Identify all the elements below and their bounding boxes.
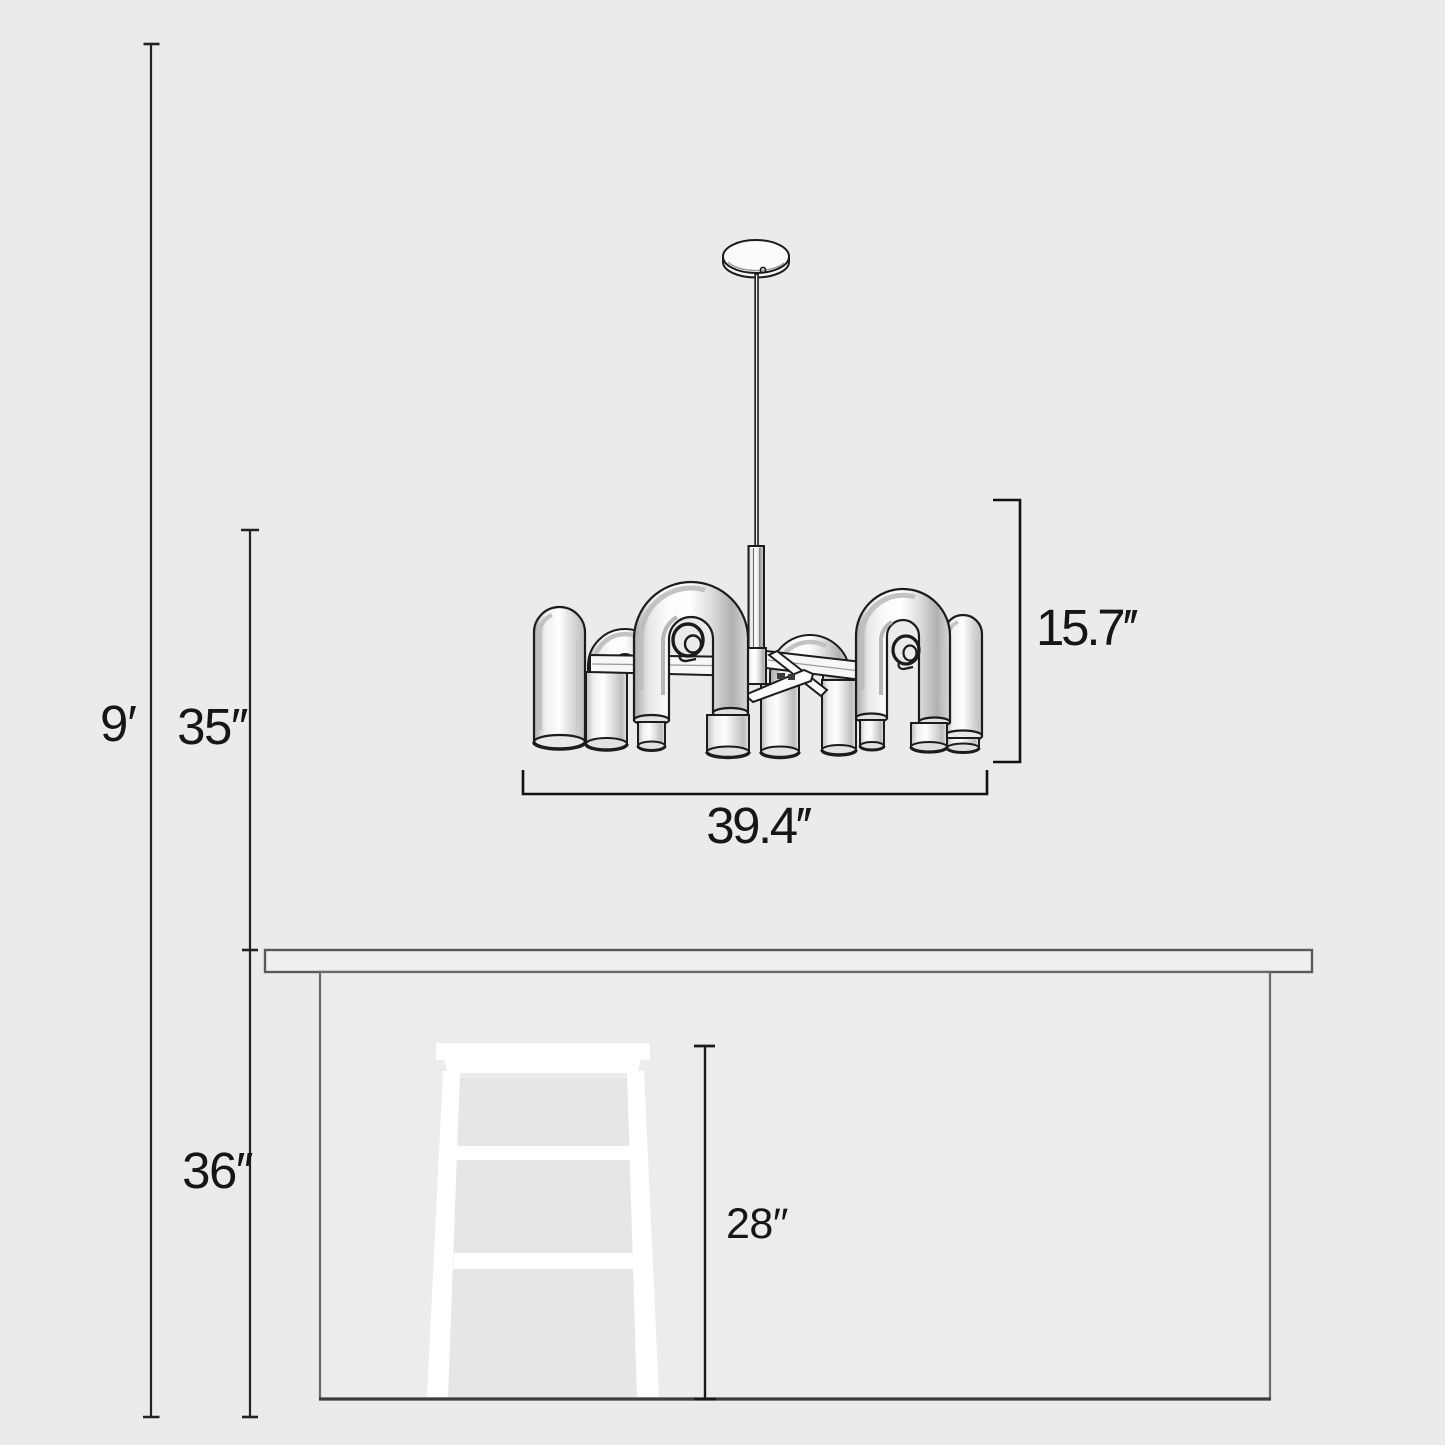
svg-text:36′′: 36′′ (182, 1142, 253, 1199)
svg-text:39.4′′: 39.4′′ (706, 797, 811, 854)
svg-text:35′′: 35′′ (177, 698, 248, 755)
svg-text:28′′: 28′′ (726, 1200, 788, 1248)
svg-text:15.7′′: 15.7′′ (1036, 599, 1138, 656)
svg-text:9′: 9′ (100, 695, 136, 752)
